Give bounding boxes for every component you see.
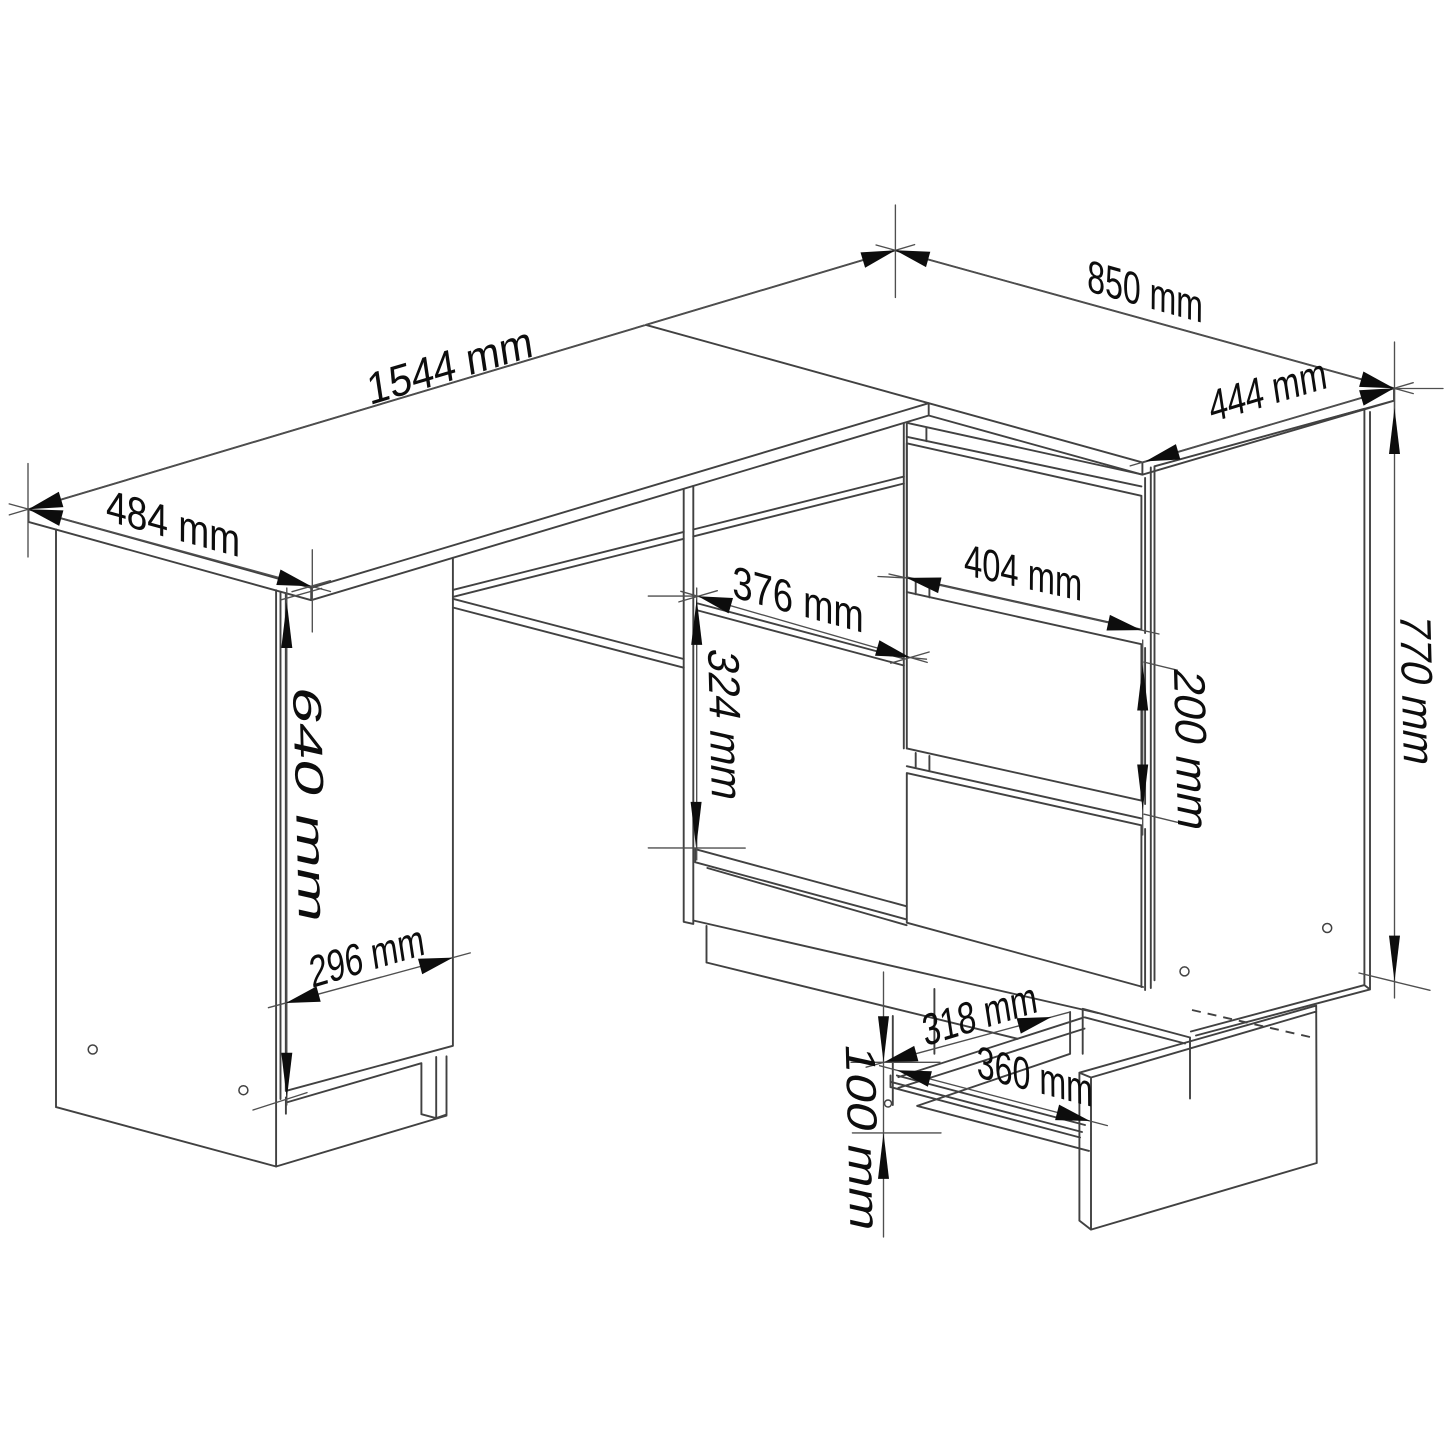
svg-text:640 mm: 640 mm — [284, 683, 336, 928]
svg-text:100 mm: 100 mm — [836, 1040, 888, 1235]
svg-text:324 mm: 324 mm — [698, 645, 750, 806]
svg-text:770 mm: 770 mm — [1390, 610, 1442, 771]
svg-text:200 mm: 200 mm — [1164, 665, 1217, 836]
